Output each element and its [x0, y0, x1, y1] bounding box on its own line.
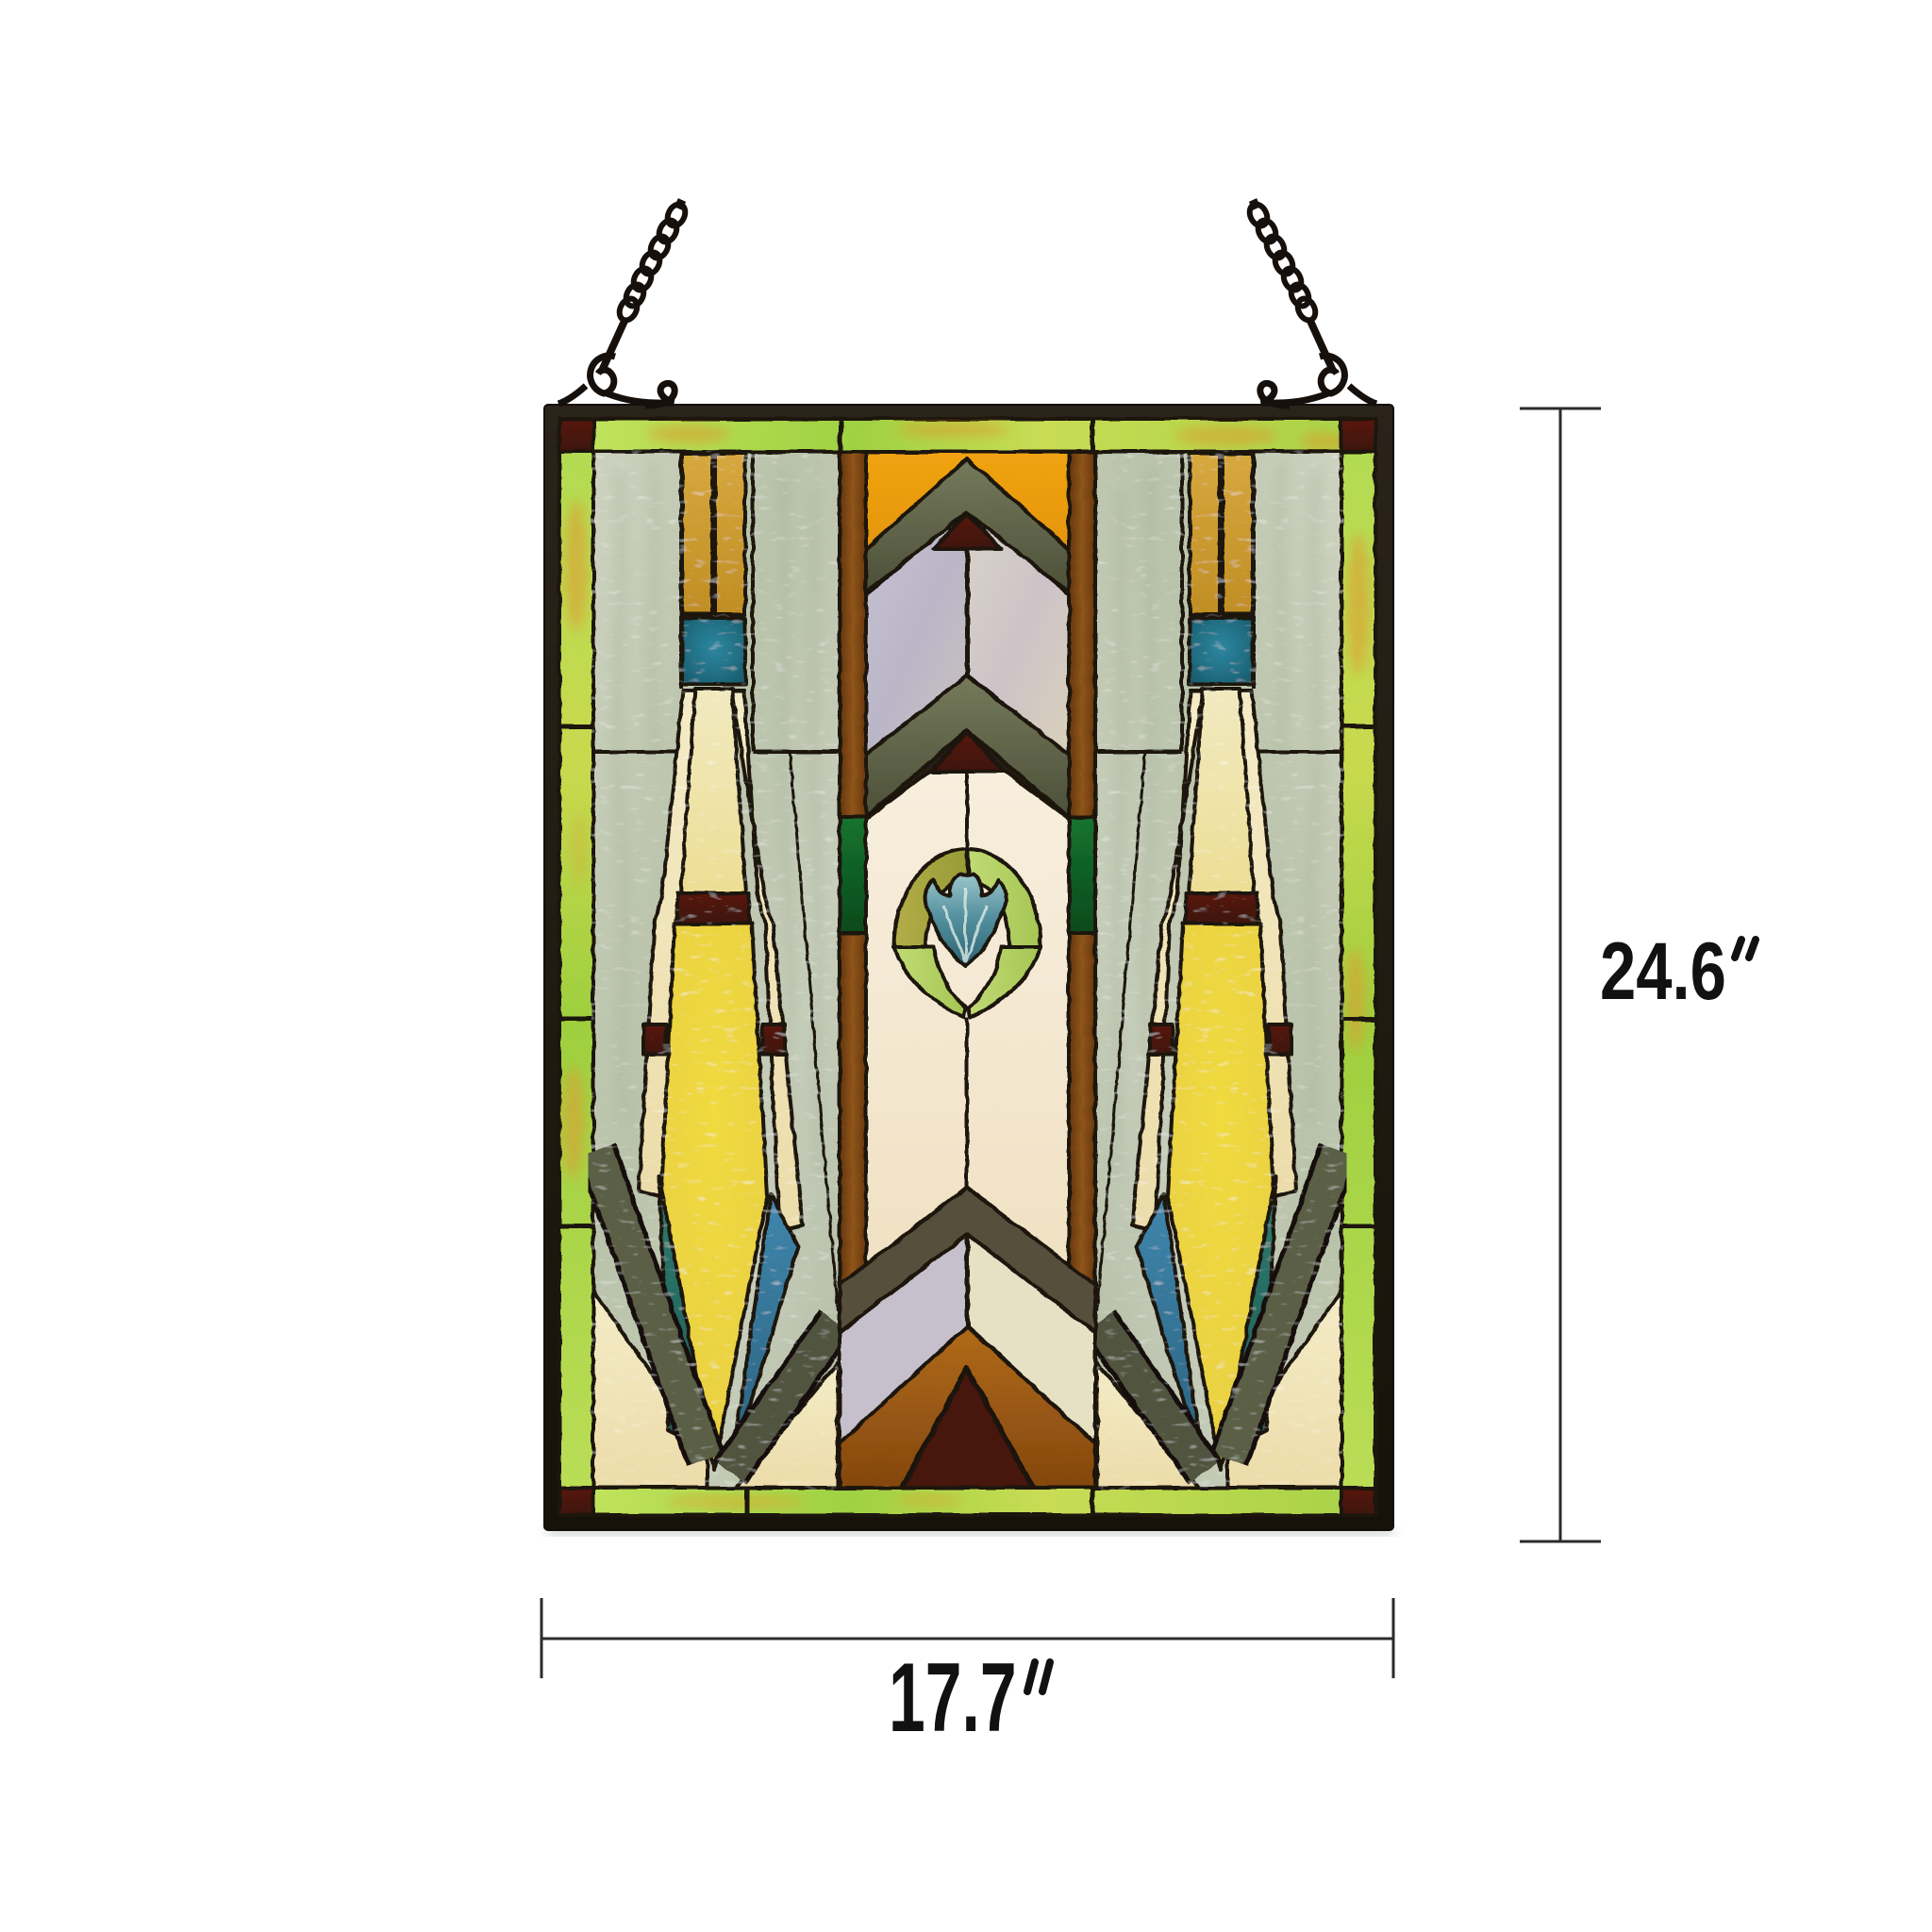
svg-text:17.7: 17.7 — [889, 1642, 1017, 1752]
svg-text:24.6: 24.6 — [1600, 926, 1726, 1017]
